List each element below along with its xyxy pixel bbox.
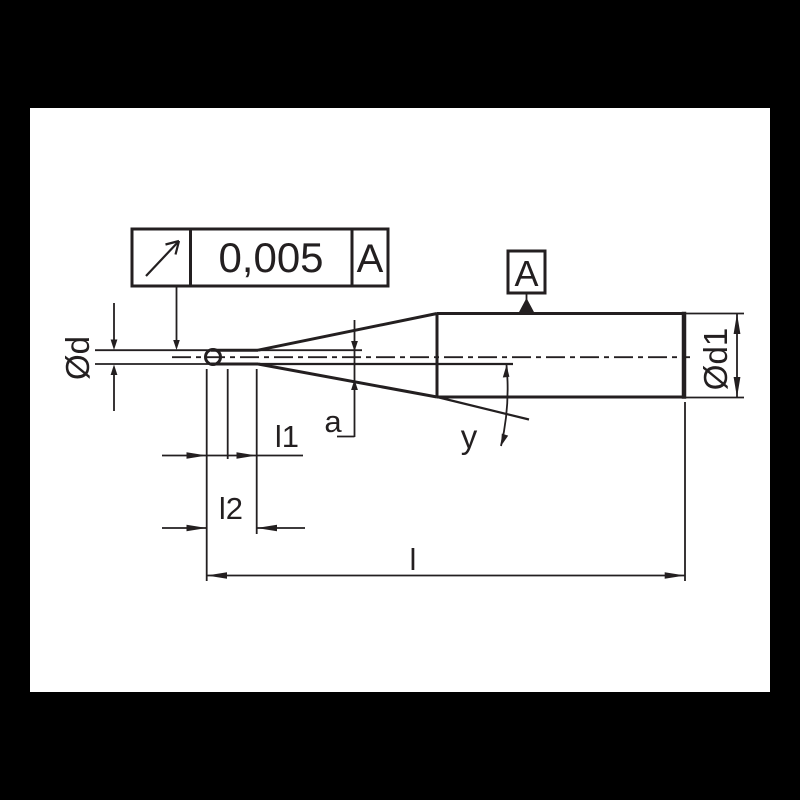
dim-l2-label: l2 [219, 491, 243, 526]
dim-y-label: y [461, 418, 478, 455]
technical-drawing-page: 0,005 A A Ød [0, 0, 800, 800]
dim-l1-label: l1 [275, 419, 299, 454]
dim-d1-label: Ød1 [697, 328, 734, 390]
dim-a-label: a [324, 404, 342, 439]
dim-d-label: Ød [59, 336, 96, 380]
drawing-canvas [30, 108, 770, 692]
tool-dimension-drawing: 0,005 A A Ød [0, 0, 800, 800]
dim-l-label: l [410, 542, 417, 577]
tolerance-datum-letter: A [357, 237, 384, 281]
datum-flag-letter: A [514, 253, 538, 294]
tolerance-value: 0,005 [218, 234, 323, 281]
